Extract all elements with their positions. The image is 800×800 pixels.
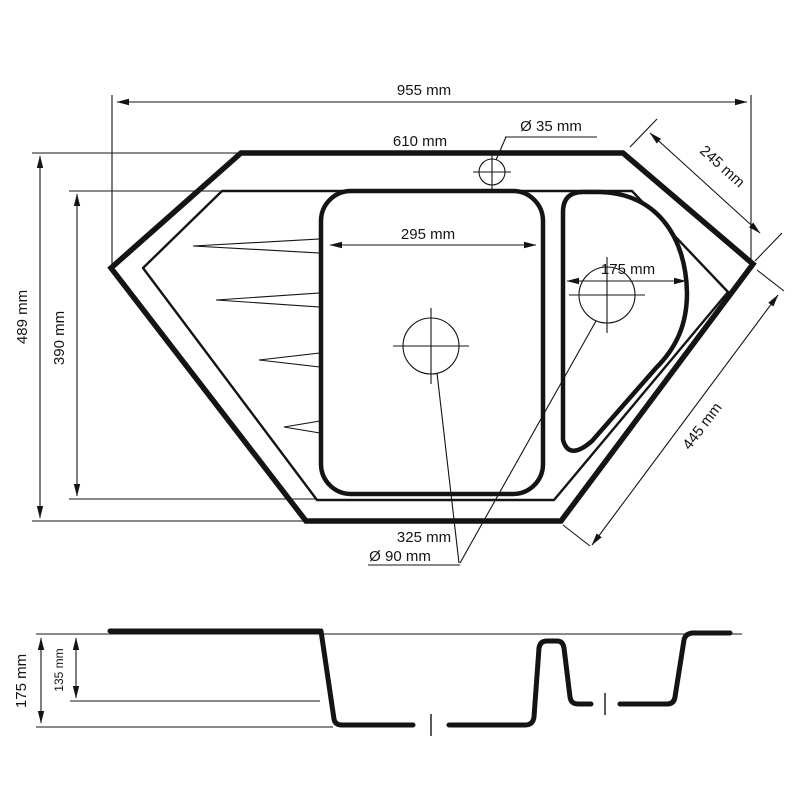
dim-main-bowl-depth-label: 175 mm xyxy=(13,654,30,708)
drain-diameter-label: Ø 90 mm xyxy=(369,548,431,565)
drainboard-grooves xyxy=(193,239,320,433)
dim-small-bowl-depth-label: 135 mm xyxy=(52,648,66,691)
dim-top-right-edge-label: 245 mm xyxy=(696,142,748,191)
dim-total-depth: 489 mm xyxy=(14,156,40,518)
sink-technical-drawing: Ø 35 mm 955 mm 610 mm 489 mm xyxy=(0,0,800,800)
dim-total-width: 955 mm xyxy=(117,82,747,102)
dim-main-bowl-width-label: 295 mm xyxy=(401,226,455,243)
dim-inner-depth: 390 mm xyxy=(51,194,77,496)
dim-total-width-label: 955 mm xyxy=(397,82,451,99)
dim-main-bowl-depth: 175 mm xyxy=(13,638,41,723)
small-bowl xyxy=(563,192,687,451)
dim-inner-depth-label: 390 mm xyxy=(51,311,68,365)
dim-top-edge-label: 610 mm xyxy=(393,133,447,150)
drain-diameter-callout: Ø 90 mm xyxy=(368,548,460,565)
dim-bottom-right-edge-label: 445 mm xyxy=(679,400,725,453)
faucet-hole xyxy=(473,137,597,191)
sink-top-view: Ø 35 mm 955 mm 610 mm 489 mm xyxy=(14,82,784,565)
section-profile xyxy=(110,631,730,736)
dim-main-bowl-bottom-label: 325 mm xyxy=(397,529,451,546)
sink-section-view: 175 mm 135 mm xyxy=(13,631,742,736)
faucet-hole-label: Ø 35 mm xyxy=(520,118,582,135)
dim-small-bowl-depth: 135 mm xyxy=(52,638,76,698)
dim-total-depth-label: 489 mm xyxy=(14,290,31,344)
dim-small-bowl-width-label: 175 mm xyxy=(601,261,655,278)
drawing-canvas: Ø 35 mm 955 mm 610 mm 489 mm xyxy=(0,0,800,800)
dim-top-right-edge: 245 mm xyxy=(650,133,760,233)
